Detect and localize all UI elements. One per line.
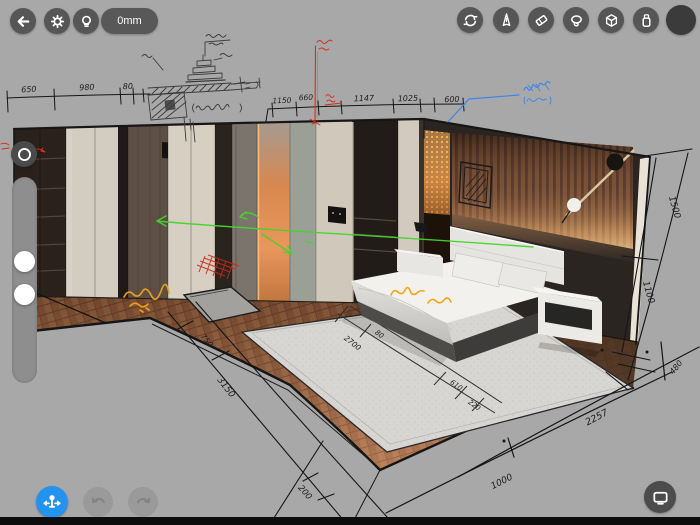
dimension-label: 1147 — [354, 94, 376, 104]
sync-rotate-icon — [462, 12, 479, 29]
view-mode-button[interactable] — [11, 141, 37, 167]
lasso-icon — [568, 12, 585, 29]
eraser-icon — [533, 12, 550, 29]
dimension-label: 660 — [299, 93, 314, 103]
back-icon — [15, 13, 32, 30]
marker-icon — [638, 12, 655, 29]
move-gizmo-button[interactable] — [36, 486, 68, 518]
settings-button[interactable] — [44, 8, 70, 34]
dimension-label: 980 — [79, 83, 95, 93]
dimension-label: 1000 — [490, 472, 515, 491]
adjustment-slider-track[interactable] — [12, 177, 37, 383]
cube-icon — [603, 12, 620, 29]
lightbulb-icon — [78, 13, 95, 30]
3d-viewport[interactable]: 2700 80 610 220 — [0, 0, 700, 525]
dimension-label: 1500 — [666, 195, 682, 220]
dimension-label: 600 — [444, 95, 460, 105]
dimension-label: 3150 — [215, 376, 237, 400]
wardrobe-wall — [14, 119, 424, 304]
measurement-button[interactable]: 0mm — [101, 8, 158, 34]
back-button[interactable] — [10, 8, 36, 34]
sync-rotate-button[interactable] — [457, 7, 483, 33]
pen-icon — [498, 12, 515, 29]
color-swatch-button[interactable] — [666, 5, 696, 35]
dimension-label: 1025 — [398, 94, 419, 104]
display-button[interactable] — [644, 481, 676, 513]
slider-handle-upper[interactable] — [14, 251, 35, 272]
undo-button[interactable] — [83, 487, 113, 517]
slider-handle-lower[interactable] — [14, 284, 35, 305]
pen-tool-button[interactable] — [493, 7, 519, 33]
marker-tool-button[interactable] — [633, 7, 659, 33]
3d-mode-button[interactable] — [598, 7, 624, 33]
display-icon — [651, 488, 670, 507]
home-indicator-bar — [0, 517, 700, 525]
dimension-label: 480 — [668, 359, 685, 376]
dimension-label: 200 — [295, 483, 313, 502]
measurement-value: 0mm — [117, 15, 141, 27]
eraser-tool-button[interactable] — [528, 7, 554, 33]
redo-button[interactable] — [128, 487, 158, 517]
lasso-tool-button[interactable] — [563, 7, 589, 33]
undo-icon — [89, 493, 108, 512]
dimension-label: 2257 — [584, 407, 611, 428]
dimension-label: 1150 — [272, 96, 292, 106]
ring-icon — [16, 146, 33, 163]
dimension-label: 1100 — [640, 280, 656, 305]
gear-icon — [49, 13, 66, 30]
dimension-label: 650 — [21, 85, 37, 95]
lighting-button[interactable] — [73, 8, 99, 34]
move-gizmo-icon — [42, 492, 62, 512]
redo-icon — [134, 493, 153, 512]
dimension-label: 80 — [123, 82, 134, 92]
